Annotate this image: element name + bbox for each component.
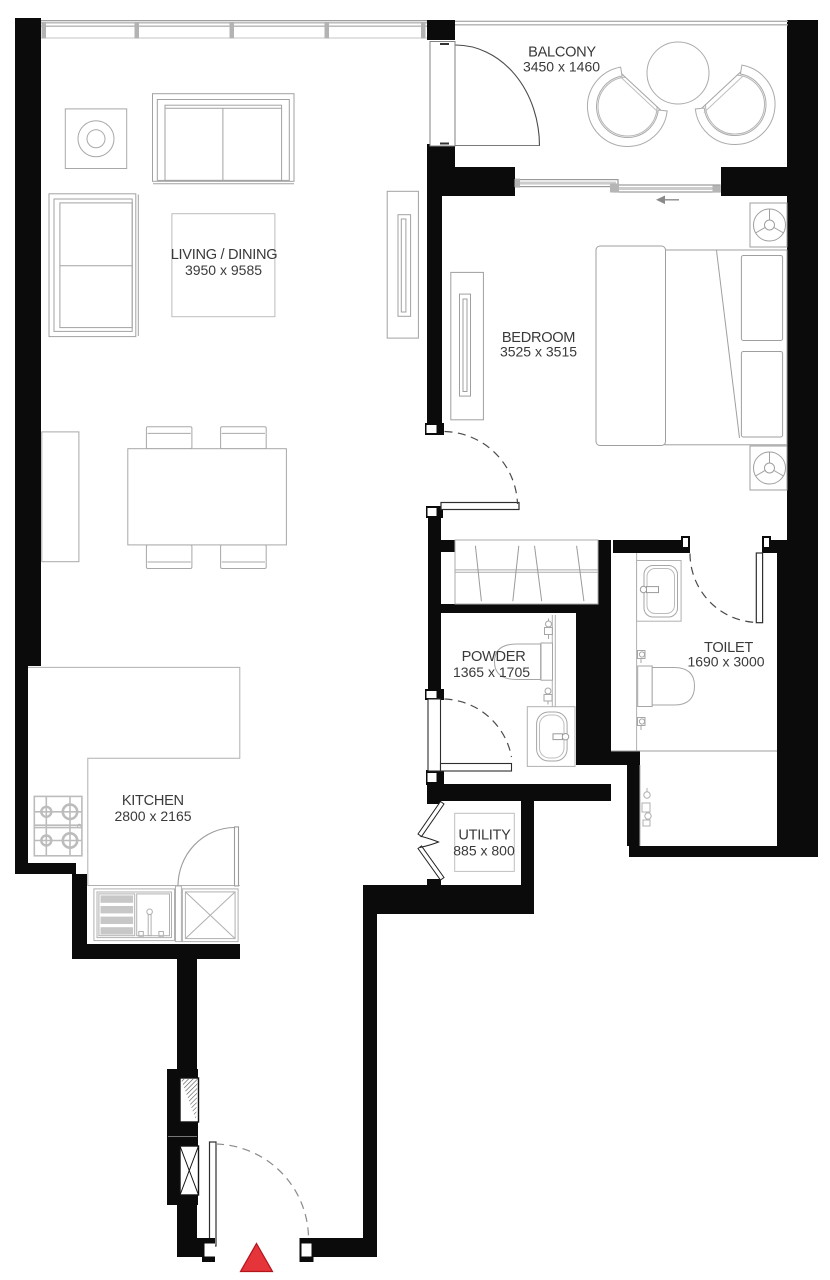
svg-text:UTILITY: UTILITY <box>458 828 511 844</box>
svg-text:LIVING / DINING: LIVING / DINING <box>171 247 278 263</box>
svg-text:1365 x 1705: 1365 x 1705 <box>453 664 530 680</box>
svg-text:3950 x 9585: 3950 x 9585 <box>185 262 262 278</box>
svg-text:885 x 800: 885 x 800 <box>453 843 515 859</box>
svg-text:3450 x 1460: 3450 x 1460 <box>523 59 600 75</box>
svg-text:POWDER: POWDER <box>462 649 526 665</box>
svg-text:2800 x 2165: 2800 x 2165 <box>114 808 191 824</box>
svg-text:KITCHEN: KITCHEN <box>122 793 184 809</box>
svg-text:3525 x 3515: 3525 x 3515 <box>500 344 577 360</box>
svg-text:1690 x 3000: 1690 x 3000 <box>687 654 764 670</box>
